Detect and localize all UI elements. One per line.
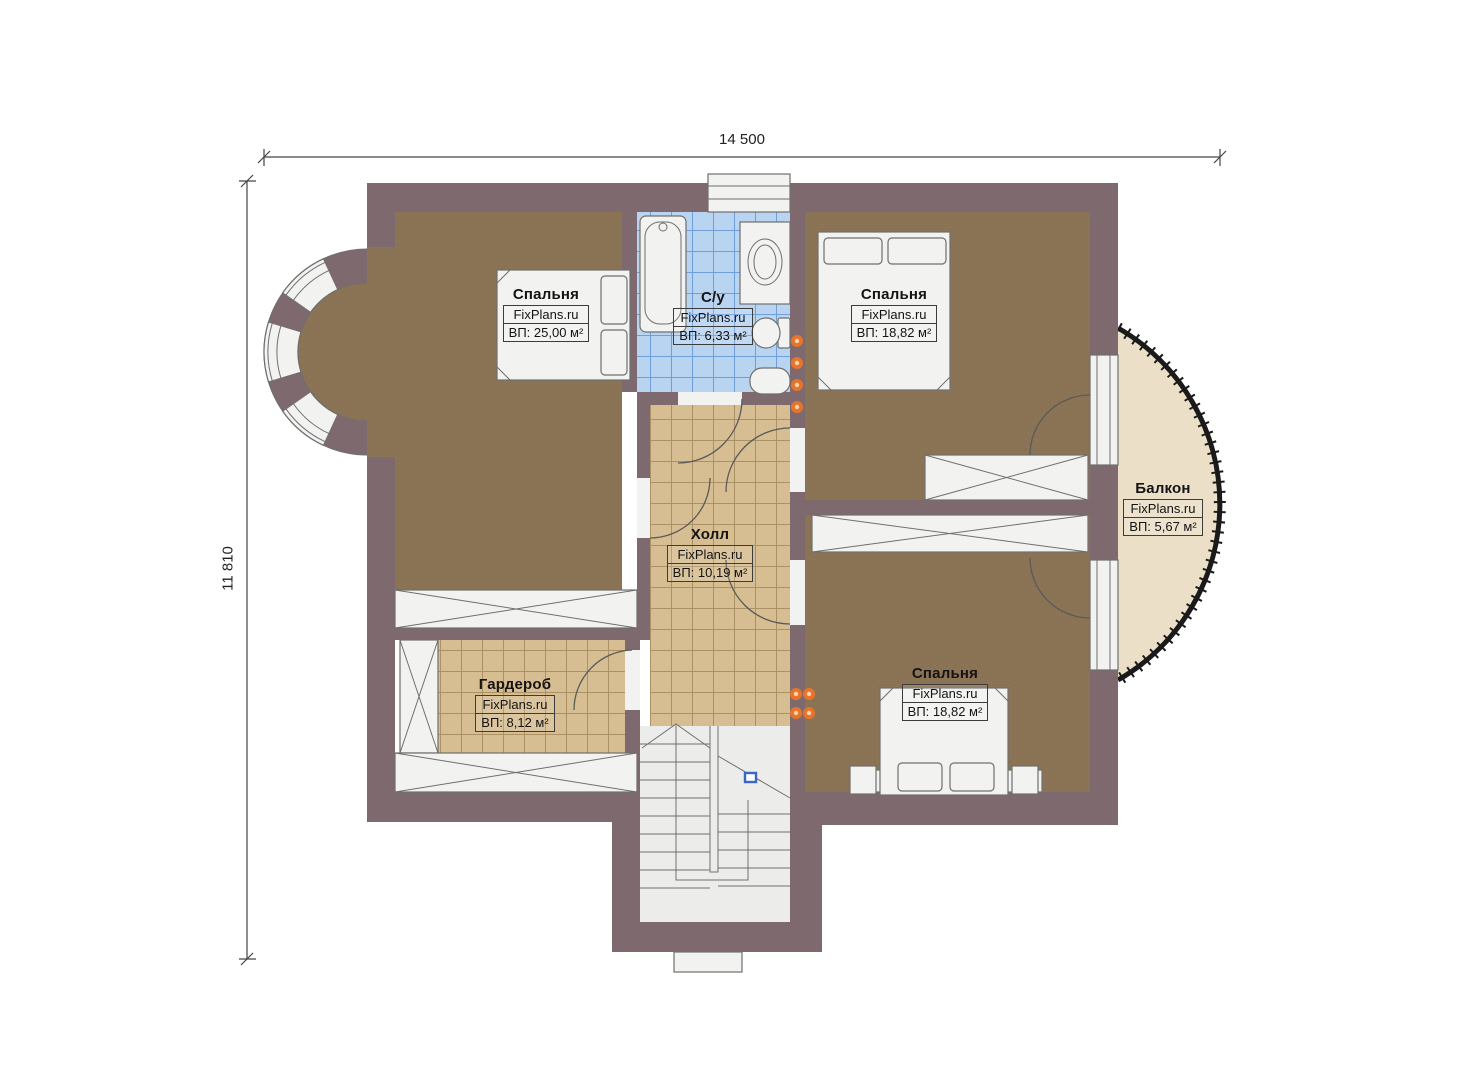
room-area: ВП: 18,82 м² [851,324,938,342]
wall-bottom-left [367,792,640,822]
bedroom-br-door-opening [790,560,805,625]
wardrobe-door-opening [625,650,640,710]
room-brand: FixPlans.ru [851,305,938,324]
bathroom-door-opening [678,392,742,405]
room-name: Гардероб [475,676,554,693]
room-brand: FixPlans.ru [503,305,590,324]
room-brand: FixPlans.ru [475,695,554,714]
closet-wardrobe-bottom [395,753,637,792]
wall-left-upper [367,212,395,247]
bidet [750,368,790,394]
dimension-top-label: 14 500 [692,131,792,148]
room-label-hall: Холл FixPlans.ru ВП: 10,19 м² [649,526,771,582]
bathroom-window [708,174,790,212]
stairwell-floor [640,726,790,922]
bedroom-tr-door-opening [790,428,805,492]
room-name: Спальня [503,286,590,303]
room-area: ВП: 5,67 м² [1123,518,1202,536]
wall-bedrooms-divider [805,500,1090,515]
wall-wardrobe-top [395,628,637,640]
room-brand: FixPlans.ru [667,545,754,564]
room-area: ВП: 18,82 м² [902,703,989,721]
dimension-left-label: 11 810 [220,529,237,609]
room-area: ВП: 6,33 м² [673,327,752,345]
room-label-bathroom: С/у FixPlans.ru ВП: 6,33 м² [657,289,769,345]
wall-left-lower [367,457,395,792]
room-label-balcony: Балкон FixPlans.ru ВП: 5,67 м² [1106,480,1220,536]
room-label-bedroom-tr: Спальня FixPlans.ru ВП: 18,82 м² [833,286,955,342]
nightstand [1012,766,1038,794]
closet-bedroom-tl [395,590,637,628]
balcony-door-top [1090,355,1118,465]
room-area: ВП: 25,00 м² [503,324,590,342]
stairs-marker [745,773,756,782]
room-area: ВП: 8,12 м² [475,714,554,732]
wall-bottom-right [790,792,1118,825]
room-name: Спальня [902,665,989,682]
floor-plan-page: 14 500 11 810 Спальня FixPlans.ru ВП: 25… [0,0,1474,1080]
stair-landing [674,952,742,972]
room-brand: FixPlans.ru [902,684,989,703]
wall-stair-bottom [612,922,822,952]
turret-window [264,322,301,382]
closet-bedroom-br [812,515,1088,552]
room-name: Балкон [1123,480,1202,497]
room-label-wardrobe: Гардероб FixPlans.ru ВП: 8,12 м² [454,676,576,732]
room-brand: FixPlans.ru [673,308,752,327]
room-label-bedroom-tl: Спальня FixPlans.ru ВП: 25,00 м² [485,286,607,342]
closet-wardrobe-left [400,640,438,753]
balcony-door-bottom [1090,560,1118,670]
wall-hall-right [790,212,805,792]
room-brand: FixPlans.ru [1123,499,1202,518]
room-name: Холл [667,526,754,543]
closet-bedroom-tr [925,455,1088,500]
room-area: ВП: 10,19 м² [667,564,754,582]
nightstand [850,766,876,794]
room-label-bedroom-br: Спальня FixPlans.ru ВП: 18,82 м² [884,665,1006,721]
room-name: Спальня [851,286,938,303]
room-name: С/у [673,289,752,306]
